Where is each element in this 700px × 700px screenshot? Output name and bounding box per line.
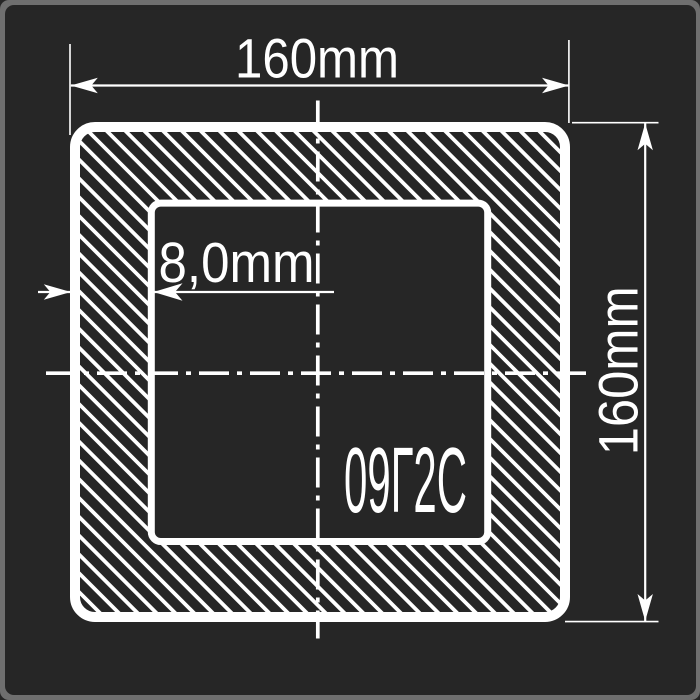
svg-text:8,0mm: 8,0mm	[159, 231, 315, 295]
svg-text:09Г2С: 09Г2С	[344, 430, 467, 533]
svg-text:160mm: 160mm	[587, 286, 650, 455]
svg-text:160mm: 160mm	[235, 27, 399, 90]
